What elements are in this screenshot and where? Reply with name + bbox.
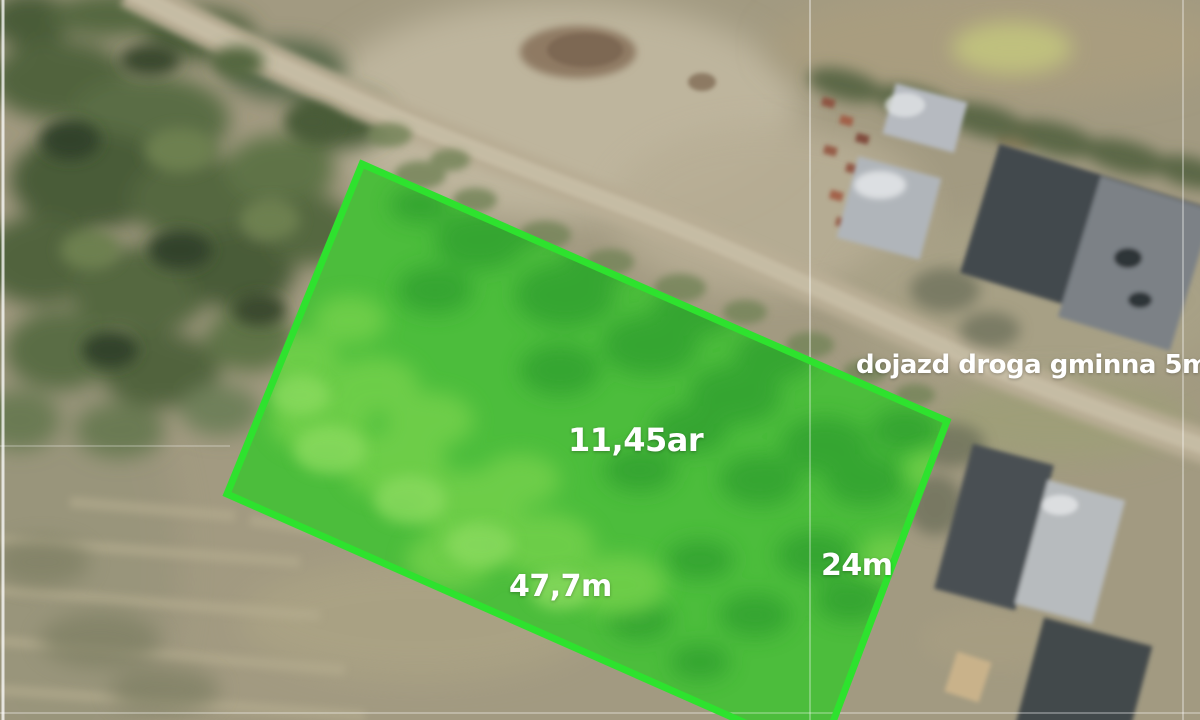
parcel-length-label: 47,7m bbox=[509, 572, 612, 602]
parcel-width-label: 24m bbox=[821, 551, 893, 581]
parcel-area-label: 11,45ar bbox=[568, 424, 703, 456]
access-road-label: dojazd droga gminna 5m bbox=[856, 352, 1200, 378]
aerial-parcel-map: 11,45ar 47,7m 24m dojazd droga gminna 5m bbox=[0, 0, 1200, 720]
